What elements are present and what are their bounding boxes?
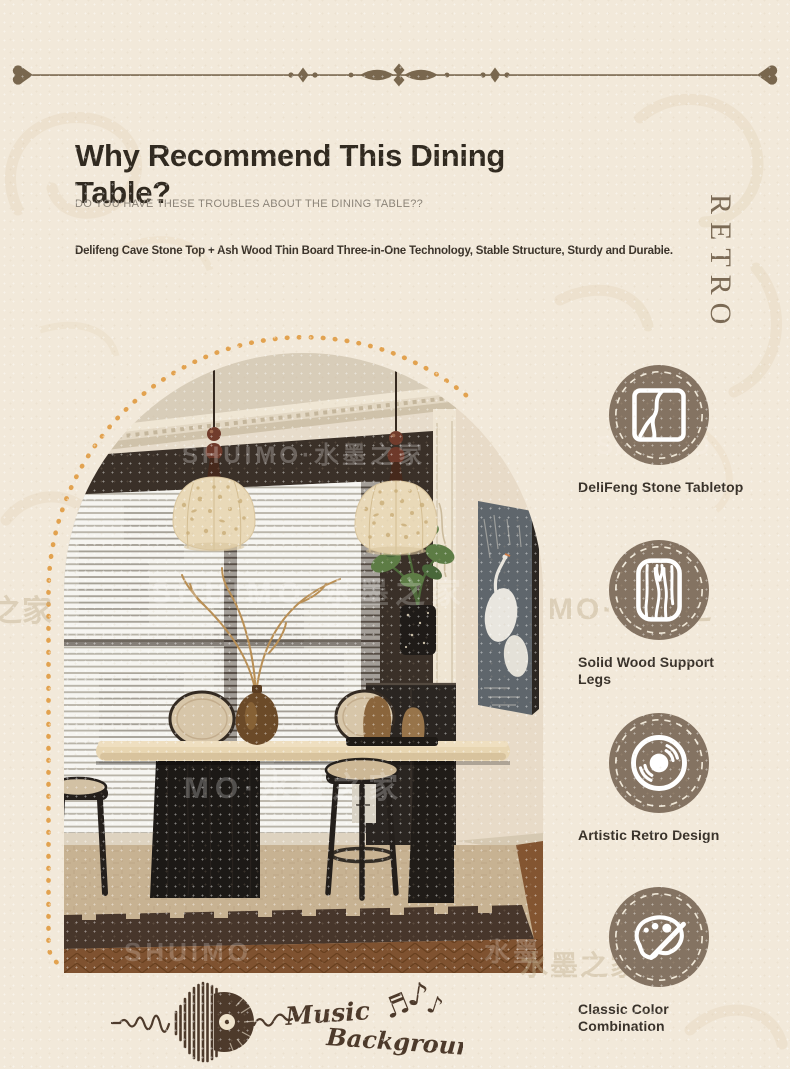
dining-room-photo: SHUIMO·水墨之家 SHUIMO·水墨之家 MO·水墨之家 SHUIMO 水… [64, 353, 543, 973]
table-leg [408, 761, 454, 903]
wood-grain-icon [608, 539, 710, 641]
feature-color-combination: Classic Color Combination [578, 886, 778, 1035]
dining-chair-back [170, 692, 234, 746]
area-rug [64, 845, 534, 949]
feature-label: Solid Wood Support Legs [578, 654, 728, 688]
swan-wall-art [478, 501, 539, 715]
sound-wave [112, 1016, 169, 1032]
product-detail-page: Why Recommend This Dining Table? DO YOU … [0, 0, 790, 1069]
small-right-ornament [480, 68, 509, 83]
svg-text:SHUIMO·水墨之家: SHUIMO·水墨之家 [151, 576, 467, 610]
feature-wood-legs: Solid Wood Support Legs [578, 539, 778, 688]
svg-text:MO·水墨之家: MO·水墨之家 [184, 771, 404, 805]
music-background-decoration: Music Background ♬ ♪ ♪ [108, 973, 463, 1065]
divider-line [32, 74, 758, 76]
page-subtitle: DO YOU HAVE THESE TROUBLES ABOUT THE DIN… [75, 198, 423, 210]
dining-room-scene: SHUIMO·水墨之家 SHUIMO·水墨之家 MO·水墨之家 SHUIMO 水… [64, 353, 543, 973]
retro-vertical-label: RETRO [703, 194, 737, 364]
feature-retro-design: Artistic Retro Design [578, 712, 778, 844]
window-transom [64, 639, 380, 646]
svg-text:水墨之: 水墨之 [484, 937, 543, 967]
svg-text:SHUIMO·水墨之家: SHUIMO·水墨之家 [182, 441, 426, 469]
feature-label: DeliFeng Stone Tabletop [578, 479, 788, 496]
feature-label: Artistic Retro Design [578, 827, 778, 844]
heart-right-ornament [757, 65, 777, 84]
heart-left-ornament [13, 65, 33, 84]
small-left-ornament [288, 68, 317, 83]
background-word: Background [325, 1022, 463, 1062]
music-notes-icon: ♬ ♪ ♪ [379, 974, 447, 1025]
svg-text:SHUIMO: SHUIMO [124, 937, 252, 967]
center-ornament [349, 64, 450, 87]
vinyl-record-icon [608, 712, 710, 814]
feature-stone-tabletop: DeliFeng Stone Tabletop [578, 364, 778, 496]
stone-tabletop-icon [608, 364, 710, 466]
crescendo-bars [176, 983, 217, 1061]
ornamental-divider [10, 62, 780, 88]
feature-description-line: Delifeng Cave Stone Top + Ash Wood Thin … [75, 245, 673, 257]
paint-palette-icon [608, 886, 710, 988]
feature-label: Classic Color Combination [578, 1001, 698, 1035]
